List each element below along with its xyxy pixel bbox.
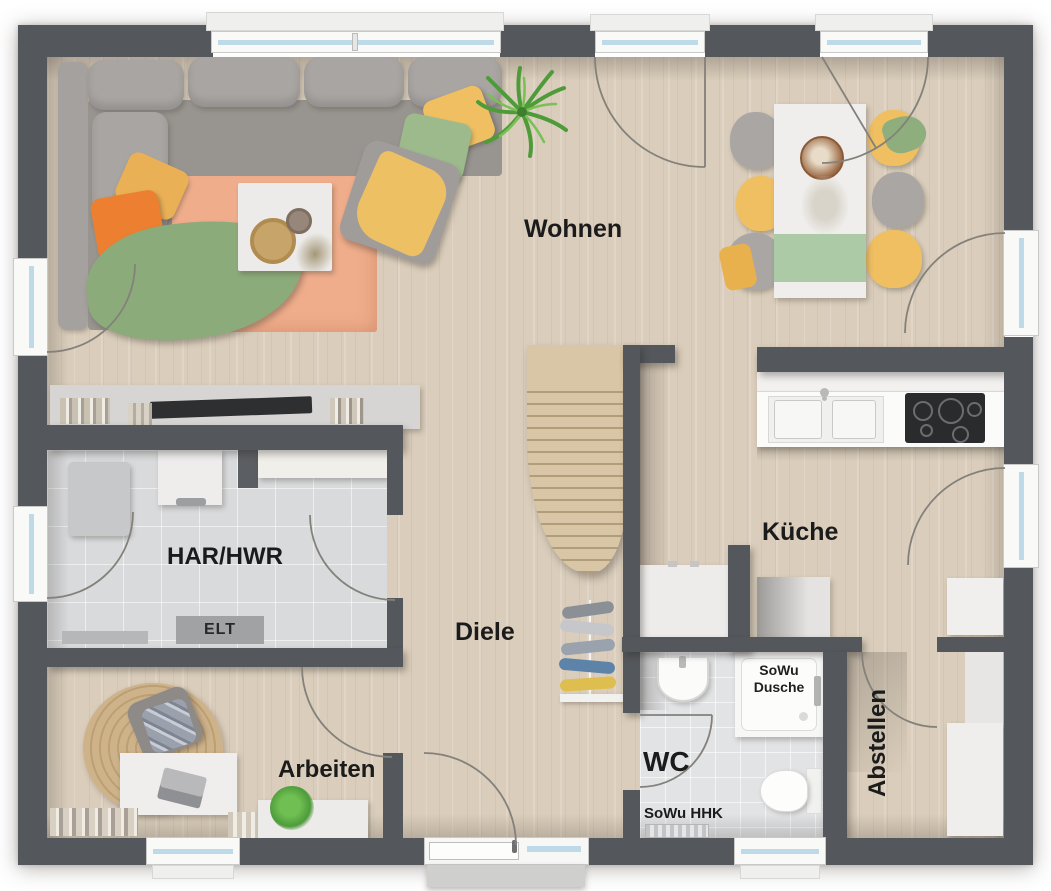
floor-plan: ELT [0,0,1051,891]
kitchen-sink-basin-right [832,400,876,439]
wall-right-1 [1004,25,1033,232]
wall-stairs-right [623,345,640,713]
shoe-rack-base [560,694,624,702]
wall-right-3 [1004,565,1033,865]
annotation-sowu-dusche-line2: Dusche [740,679,818,696]
wall-stairs-right-lower [623,790,640,838]
window-bottom-office [146,837,240,865]
wall-bottom-2 [240,838,424,865]
window-left-living [13,258,48,356]
window-left-hwr [13,506,48,602]
shower-drain [799,712,808,721]
hwr-appliance [158,449,222,505]
window-bottom-wc-sill [740,865,820,879]
sofa-back-cushion-2 [188,57,300,107]
sofa-back-cushion-3 [304,57,404,107]
toilet-bowl [760,770,808,812]
window-top-b-sill [590,14,710,31]
kitchen-base-unit [757,577,830,637]
window-top-c [820,31,928,53]
terrace-door-divider [352,33,358,51]
wall-kitchen-top [757,347,1005,372]
dining-centerpiece-bowl [800,136,844,180]
annotation-sowu-hhk: SoWu HHK [644,806,723,821]
window-left-hwr-glass [29,514,34,594]
kitchen-niche-shelf [947,578,1003,635]
towel-radiator [645,824,709,838]
window-top-b-glass [602,40,698,45]
wall-left-1 [18,25,47,264]
dining-chair-gray-3 [872,172,924,228]
terrace-door-sill [206,12,504,31]
dining-table-runner [774,234,866,282]
entrance-door-leaf [429,842,519,860]
entrance-door-handle [512,840,517,853]
wall-top-3 [705,25,820,57]
wall-bottom-1 [18,838,146,865]
wall-left-3 [18,598,47,865]
window-top-b [595,31,705,53]
sofa-armrest-left [58,62,88,330]
wc-sink-faucet [679,656,686,668]
office-books-row-2 [228,812,262,838]
wall-left-2 [18,352,47,513]
room-label-abstellen: Abstellen [858,643,898,843]
cooktop-burner-3 [967,402,982,417]
window-bottom-office-glass [153,849,233,854]
wall-top-1 [18,25,213,57]
books-sideboard-3 [330,398,364,424]
hwr-floor-strip [62,631,148,644]
room-label-kueche: Küche [762,520,838,545]
window-right-kitchen [1003,464,1039,568]
room-label-har-hwr: HAR/HWR [167,545,283,569]
room-label-wc: WC [643,748,690,776]
window-right-dining-glass [1019,238,1024,328]
wall-arbeiten-right [383,753,403,838]
room-label-arbeiten: Arbeiten [278,758,375,782]
dining-chair-yellow-3 [866,230,922,288]
window-bottom-wc [734,837,826,865]
hall-wardrobe-handle-2 [690,561,699,567]
wall-top-2 [500,25,595,57]
room-label-diele: Diele [455,620,515,645]
wall-kitchen-stub [728,545,750,652]
office-books-row-1 [50,808,138,836]
wall-right-2 [1004,337,1033,468]
storage-shelf-lower [947,723,1003,836]
elt-box: ELT [176,616,264,644]
wall-wc-abstellen [823,652,847,838]
window-top-c-glass [827,40,921,45]
entrance-sidelight-glass [527,846,581,852]
wall-wc-top [622,637,862,652]
window-left-living-glass [29,266,34,348]
wall-har-right-upper [387,450,403,515]
entrance-porch [427,865,585,887]
annotation-sowu-dusche: SoWu Dusche [740,662,818,696]
hall-wardrobe [640,565,728,638]
hwr-appliance-door [176,498,206,506]
books-sideboard-2 [128,403,152,425]
window-right-dining [1003,230,1039,336]
window-bottom-office-sill [152,865,234,879]
storage-shelf-upper [965,648,1003,723]
kitchen-sink-basin-left [774,400,822,439]
washing-machine [68,462,130,536]
window-bottom-wc-glass [741,849,819,854]
hall-wardrobe-handle-1 [668,561,677,567]
staircase-landing [527,345,627,387]
window-top-c-sill [815,14,933,31]
kitchen-faucet [820,388,829,397]
cooktop-burner-4 [920,424,933,437]
sofa-back-cushion-1 [88,60,184,110]
room-label-wohnen: Wohnen [524,217,622,242]
window-right-kitchen-glass [1019,472,1024,560]
elt-label: ELT [204,622,236,638]
wall-har-arbeiten [47,648,403,667]
office-plant [270,786,314,830]
dining-dried-bouquet [802,176,848,234]
wall-abstellen-top [937,637,1005,652]
wall-living-har [47,425,403,450]
cooktop-burner-2 [938,398,964,424]
wall-har-right-lower [387,598,403,650]
cooktop-burner-5 [952,426,969,443]
annotation-sowu-dusche-line1: SoWu [740,662,818,679]
wall-bottom-3 [589,838,734,865]
toilet-tank [806,768,822,814]
cooktop-burner-1 [913,401,933,421]
books-sideboard-1 [60,398,110,424]
